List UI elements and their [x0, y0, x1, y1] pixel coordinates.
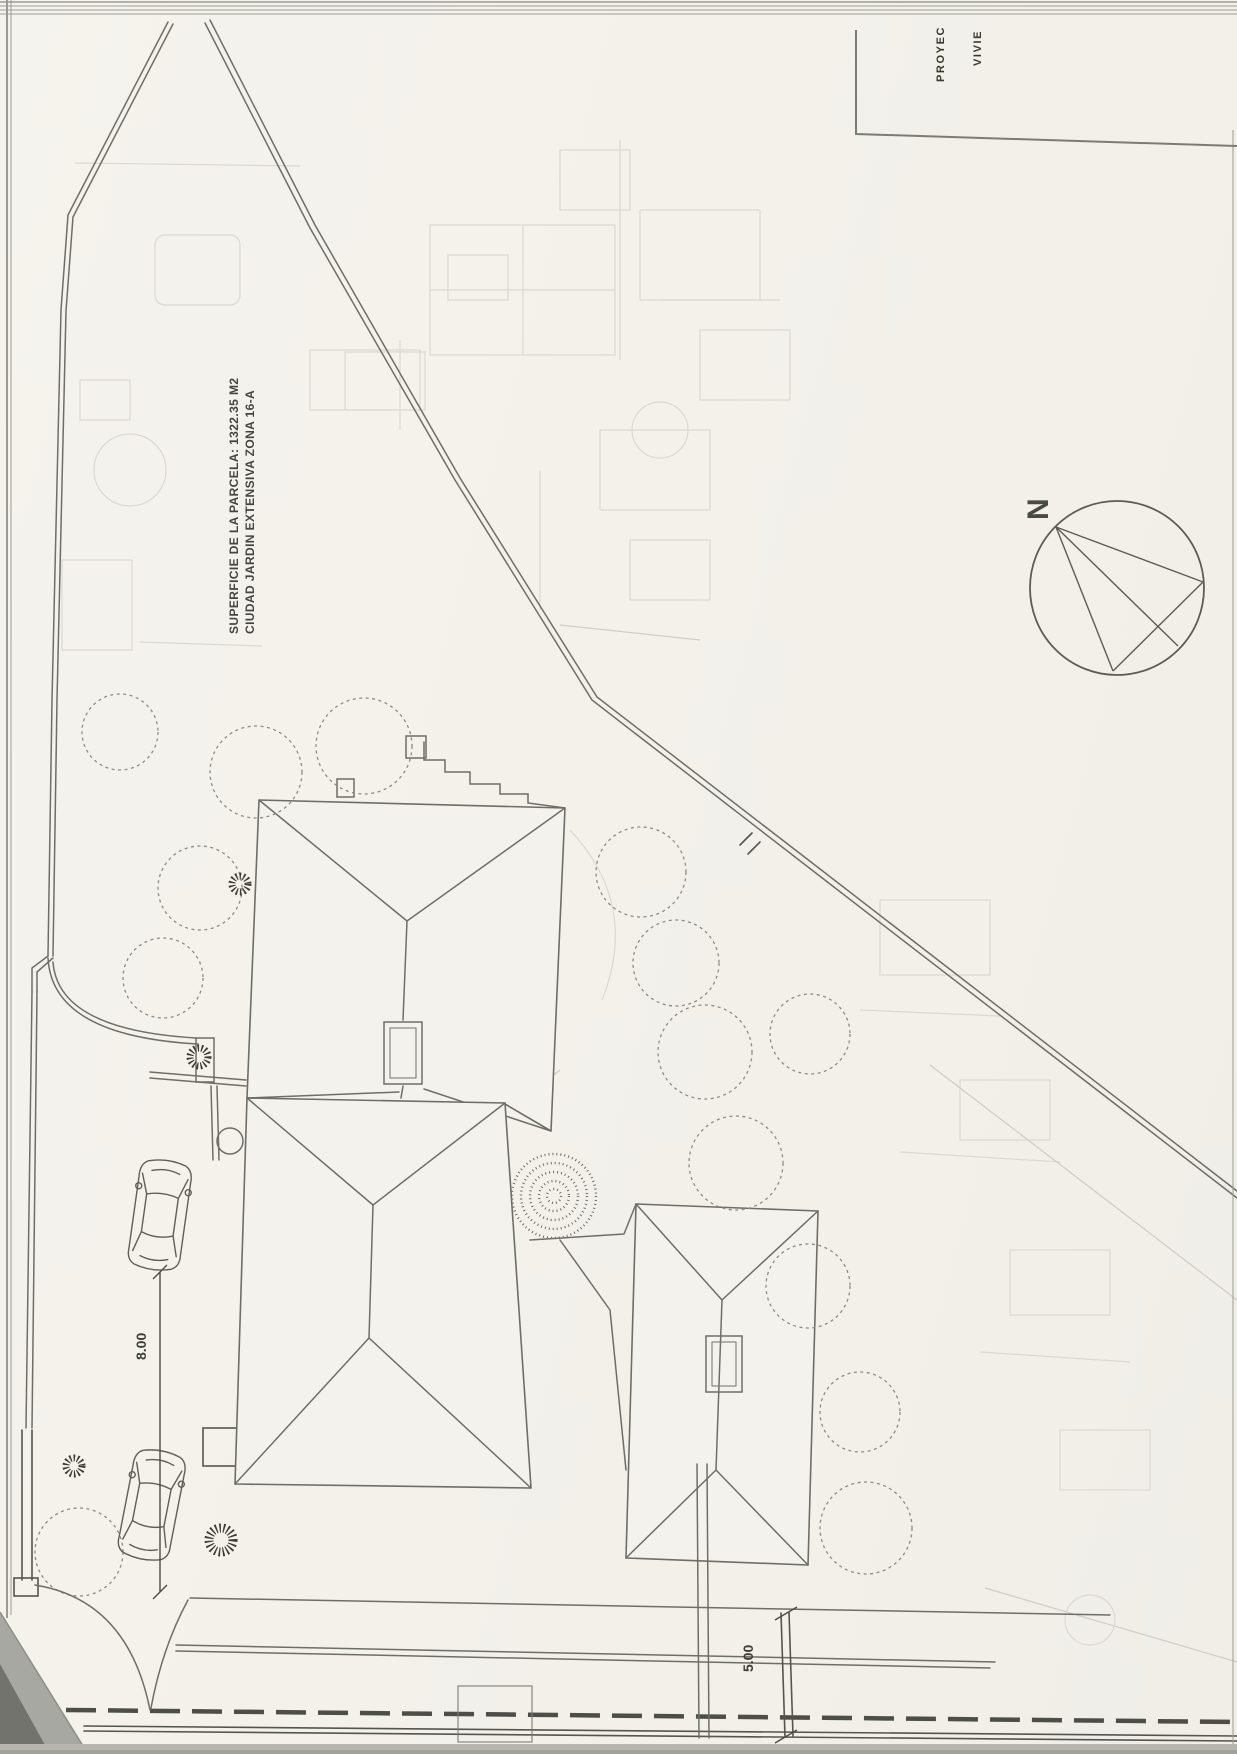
- bush-icon: [190, 1048, 208, 1066]
- title-block-frame: [856, 30, 1237, 146]
- tree-icon: [633, 920, 719, 1006]
- garden-wall: [14, 958, 246, 1596]
- site-plan-drawing: [0, 0, 1237, 1754]
- building-2: [235, 1098, 531, 1488]
- tree-icon: [689, 1116, 783, 1210]
- terrace-steps: [337, 736, 565, 808]
- tree-icon: [820, 1482, 912, 1574]
- scanned-site-plan-page: SUPERFICIE DE LA PARCELA: 1322.35 M2 CIU…: [0, 0, 1237, 1754]
- bush-icon: [209, 1528, 233, 1552]
- building-1: [247, 800, 565, 1131]
- scan-artifacts: [0, 0, 1237, 1754]
- tree-icon: [123, 938, 203, 1018]
- tree-icon: [658, 1005, 752, 1099]
- tree-icon: [316, 698, 412, 794]
- parcel-surface-text: SUPERFICIE DE LA PARCELA: 1322.35 M2: [226, 378, 242, 634]
- tree-icon: [820, 1372, 900, 1452]
- tree-icon: [770, 994, 850, 1074]
- car-icon: [124, 1157, 195, 1274]
- north-compass-icon: [1030, 501, 1204, 675]
- parcel-zone-text: CIUDAD JARDIN EXTENSIVA ZONA 16-A: [242, 378, 258, 634]
- parcel-annotation: SUPERFICIE DE LA PARCELA: 1322.35 M2 CIU…: [226, 378, 258, 634]
- cars-group: [114, 1157, 195, 1565]
- car-icon: [114, 1446, 190, 1565]
- tree-icon: [82, 694, 158, 770]
- tree-icon: [35, 1508, 123, 1596]
- dimension-label-8: 8.00: [133, 1333, 149, 1360]
- buildings-group: [235, 736, 818, 1565]
- bush-icon: [66, 1458, 82, 1474]
- building-3: [626, 1204, 818, 1565]
- north-label: N: [1022, 498, 1056, 520]
- title-block-dwelling-text: VIVIE: [972, 30, 984, 66]
- building-connector: [530, 1204, 636, 1470]
- tree-icon: [158, 846, 242, 930]
- bush-icon: [232, 876, 248, 892]
- dimension-label-5: 5.00: [740, 1645, 756, 1672]
- stippled-shrub-icon: [512, 1154, 596, 1238]
- tree-icon: [596, 827, 686, 917]
- title-block-project-text: PROYEC: [935, 26, 947, 82]
